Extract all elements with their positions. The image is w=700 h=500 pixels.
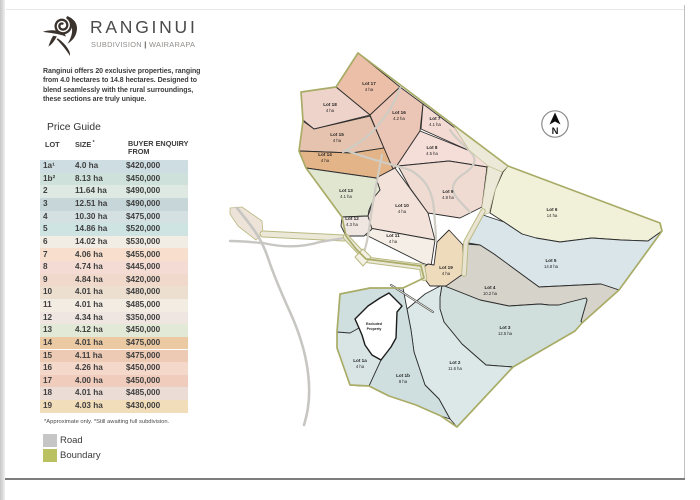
svg-text:4.3 ha: 4.3 ha [346,222,358,227]
svg-text:Lot 10: Lot 10 [395,203,409,208]
svg-text:4 ha: 4 ha [442,271,451,276]
svg-text:10.2 ha: 10.2 ha [483,291,498,296]
svg-text:Lot 4: Lot 4 [485,285,496,290]
svg-text:4.2 ha: 4.2 ha [393,116,405,121]
svg-text:14 ha: 14 ha [547,213,558,218]
svg-text:Lot 1b: Lot 1b [396,373,410,378]
svg-text:8 ha: 8 ha [399,379,408,384]
svg-text:4.1 ha: 4.1 ha [340,194,352,199]
svg-text:4 ha: 4 ha [356,364,365,369]
svg-text:14.8 ha: 14.8 ha [544,264,559,269]
svg-text:Lot 17: Lot 17 [362,81,376,86]
svg-text:4 ha: 4 ha [389,239,398,244]
svg-text:Lot 12: Lot 12 [345,216,359,221]
svg-text:4.5 ha: 4.5 ha [426,151,438,156]
svg-text:4 ha: 4 ha [321,158,330,163]
svg-text:Lot 14: Lot 14 [318,152,332,157]
svg-text:Lot 9: Lot 9 [443,189,454,194]
svg-text:4.8 ha: 4.8 ha [442,195,454,200]
svg-text:Lot 8: Lot 8 [427,145,438,150]
svg-text:4 ha: 4 ha [333,138,342,143]
svg-text:Lot 1a: Lot 1a [353,358,367,363]
svg-text:Lot 7: Lot 7 [430,116,441,121]
svg-text:Lot 5: Lot 5 [546,258,557,263]
svg-text:4 ha: 4 ha [365,87,374,92]
svg-text:Lot 2: Lot 2 [450,360,461,365]
svg-text:Property: Property [367,327,382,331]
svg-text:Lot 16: Lot 16 [392,110,406,115]
svg-text:4.1 ha: 4.1 ha [429,122,441,127]
svg-text:Lot 6: Lot 6 [547,207,558,212]
svg-text:N: N [552,126,559,137]
svg-text:Excluded: Excluded [366,322,382,326]
svg-text:Lot 18: Lot 18 [323,102,337,107]
svg-text:Lot 13: Lot 13 [339,188,353,193]
svg-text:4 ha: 4 ha [398,209,407,214]
svg-text:Lot 3: Lot 3 [500,325,511,330]
svg-text:Lot 19: Lot 19 [439,265,453,270]
svg-text:12.5 ha: 12.5 ha [498,331,513,336]
svg-text:Lot 15: Lot 15 [330,132,344,137]
svg-text:11.6 ha: 11.6 ha [448,366,462,371]
svg-text:4 ha: 4 ha [326,108,335,113]
svg-text:Lot 11: Lot 11 [386,233,400,238]
